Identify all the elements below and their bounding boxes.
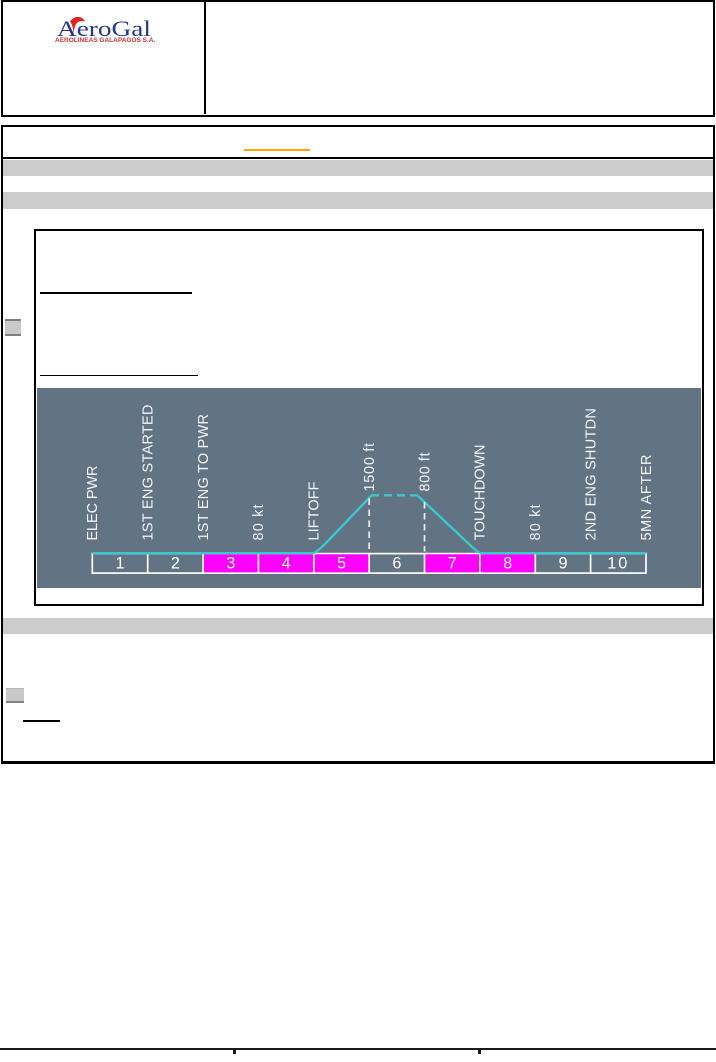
svg-text:3: 3 [226, 554, 235, 572]
svg-text:7: 7 [448, 554, 457, 572]
svg-text:8: 8 [503, 554, 512, 572]
svg-text:LIFTOFF: LIFTOFF [307, 481, 323, 540]
svg-text:5MN AFTER: 5MN AFTER [639, 454, 655, 540]
svg-text:5: 5 [337, 554, 346, 572]
svg-text:2ND ENG SHUTDN: 2ND ENG SHUTDN [583, 408, 599, 540]
svg-text:1500 ft: 1500 ft [362, 442, 378, 491]
svg-text:2: 2 [171, 554, 180, 572]
svg-text:4: 4 [282, 554, 291, 572]
svg-text:80 kt: 80 kt [528, 504, 544, 540]
svg-text:6: 6 [392, 554, 401, 572]
svg-text:80 kt: 80 kt [251, 504, 267, 540]
svg-text:1ST ENG STARTED: 1ST ENG STARTED [141, 404, 157, 540]
svg-text:800 ft: 800 ft [417, 452, 433, 491]
svg-text:1ST ENG TO PWR: 1ST ENG TO PWR [196, 414, 212, 541]
svg-text:10: 10 [607, 554, 629, 572]
svg-text:9: 9 [558, 554, 567, 572]
svg-text:ELEC PWR: ELEC PWR [85, 465, 101, 540]
svg-text:1: 1 [115, 554, 124, 572]
svg-text:TOUCHDOWN: TOUCHDOWN [473, 444, 489, 540]
